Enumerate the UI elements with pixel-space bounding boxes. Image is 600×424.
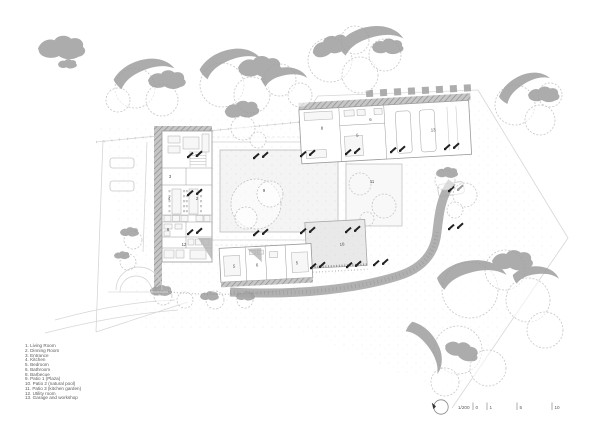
room-legend: 1. Living Room 2. Dinning Room 3. Entran… <box>25 344 81 401</box>
patio-kitchen-garden: 11 <box>346 164 402 226</box>
north-arrow-icon <box>432 400 448 414</box>
floor-plan-drawing: 9 11 10 <box>0 0 600 424</box>
scale-tick-0: 0 <box>476 405 479 410</box>
bottom-wing: 5 6 5 <box>219 244 313 288</box>
scale-tick-5: 5 <box>520 405 523 410</box>
scale-tick-1: 1 <box>490 405 493 410</box>
scale-tick-10: 10 <box>555 405 561 410</box>
scale-label: 1/200 <box>458 405 470 410</box>
legend-item: 13. Garage and workshop <box>25 396 81 401</box>
room-label-kitchen-garden: 11 <box>370 179 375 184</box>
room-label-utility: 12 <box>182 242 187 247</box>
scale-bar: 1/200 0 1 5 10 <box>458 403 560 411</box>
top-wing: 8 6 5 13 <box>298 84 475 164</box>
site-plan-sheet: 9 11 10 <box>0 0 600 424</box>
